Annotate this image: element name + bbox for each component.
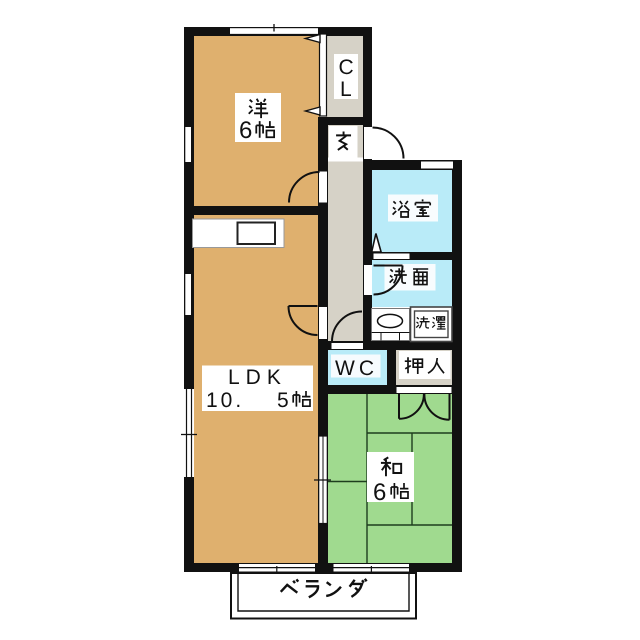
- svg-text:L: L: [340, 78, 352, 101]
- svg-text:10.: 10.: [206, 389, 244, 412]
- svg-text:LDK: LDK: [228, 366, 287, 389]
- svg-text:WC: WC: [335, 357, 378, 380]
- svg-text:C: C: [339, 56, 354, 79]
- svg-text:5: 5: [277, 389, 289, 412]
- svg-text:6: 6: [239, 117, 252, 144]
- svg-text:6: 6: [373, 479, 386, 506]
